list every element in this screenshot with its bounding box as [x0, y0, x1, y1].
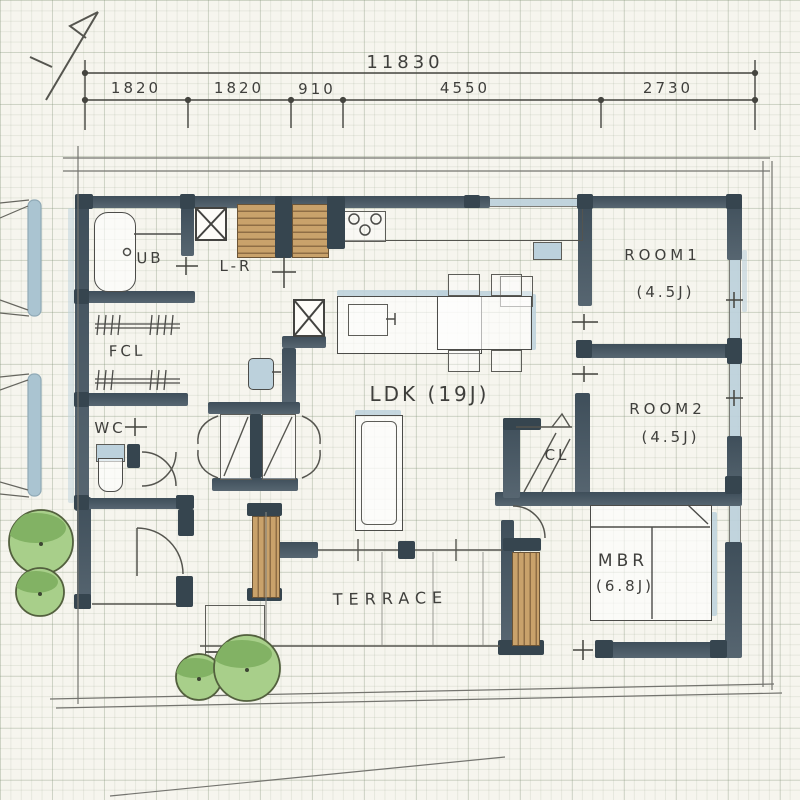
fixture-details	[124, 214, 396, 372]
closet-symbols	[224, 414, 572, 492]
site-boundary	[50, 146, 782, 796]
trees	[6, 510, 280, 701]
room-label-room2: ROOM2	[615, 400, 720, 418]
tree	[14, 568, 64, 616]
room-label-ldk: LDK (19J)	[352, 382, 507, 406]
room-size-mbr: (6.8J)	[580, 577, 670, 595]
room-size-room1: (4.5J)	[613, 283, 718, 301]
floor-plan-canvas: 11830 1820 1820 910 4550 2730 UB L-R FCL…	[0, 0, 800, 800]
north-arrow-icon	[30, 12, 98, 100]
dimension-total-label: 11830	[360, 52, 450, 73]
tree	[212, 635, 280, 701]
tree	[6, 510, 73, 574]
room-label-fcl: FCL	[98, 341, 156, 360]
room-label-terrace: TERRACE	[328, 588, 453, 609]
room-label-ub: UB	[128, 249, 172, 268]
dimension-segment-label: 910	[287, 80, 347, 98]
door-arcs	[92, 416, 545, 604]
dimension-segment-label: 4550	[432, 79, 498, 97]
neighbor-structures	[0, 200, 41, 497]
room-label-cl: CL	[536, 446, 578, 464]
room-size-room2: (4.5J)	[618, 428, 723, 446]
dimension-segment-label: 1820	[209, 79, 269, 97]
room-label-lr: L-R	[208, 257, 264, 275]
room-label-room1: ROOM1	[610, 246, 715, 264]
dimension-segment-label: 1820	[106, 79, 166, 97]
room-label-wc: WC	[86, 419, 134, 437]
dimension-segment-label: 2730	[638, 79, 698, 97]
room-label-mbr: MBR	[580, 551, 666, 571]
